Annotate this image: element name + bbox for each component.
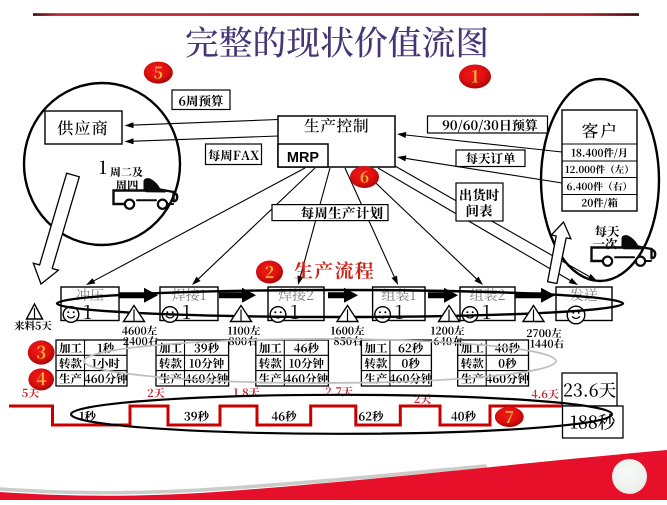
svg-text:MRP: MRP: [287, 150, 320, 166]
